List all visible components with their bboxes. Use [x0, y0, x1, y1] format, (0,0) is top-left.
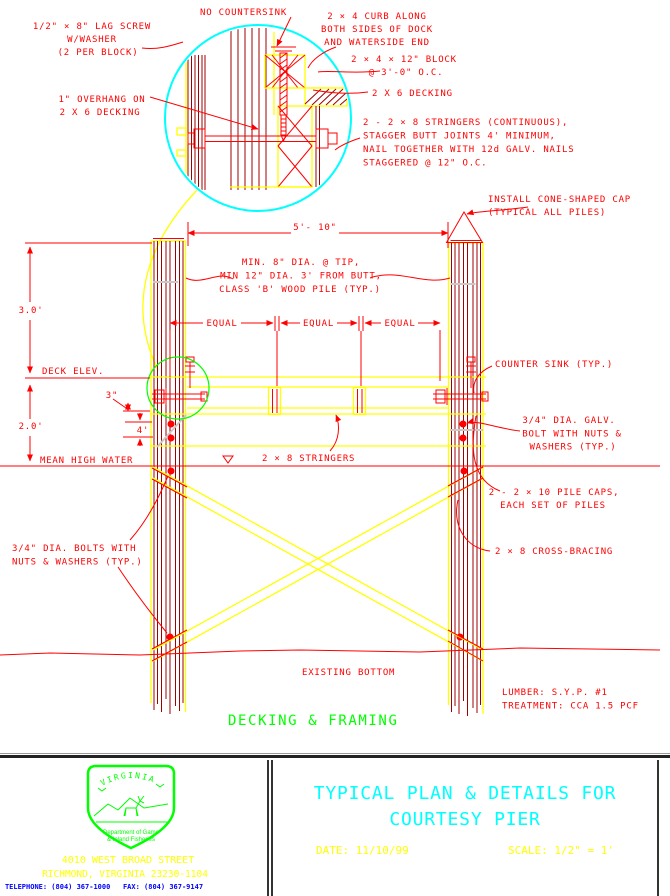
logo-dept-line1: Department of Game — [103, 830, 160, 836]
label-pile-caps: EACH SET OF PILES — [500, 501, 606, 511]
svg-text:VIRGINIA: VIRGINIA — [99, 771, 157, 788]
label-counter-sink: COUNTER SINK (TYP.) — [495, 360, 613, 370]
agency-address-line1: 4010 WEST BROAD STREET — [38, 855, 218, 866]
label-bolts: NUTS & WASHERS (TYP.) — [12, 558, 143, 568]
label-no-countersink: NO COUNTERSINK — [200, 8, 287, 18]
label-existing-bottom: EXISTING BOTTOM — [302, 668, 395, 678]
label-stringers-note: STAGGERED @ 12" O.C. — [363, 159, 487, 169]
dim-equal: EQUAL — [206, 319, 237, 329]
agency-address-line2: RICHMOND, VIRGINIA 23230-1104 — [25, 869, 225, 880]
label-stringers: 2 × 8 STRINGERS — [262, 454, 355, 464]
label-cone-cap: INSTALL CONE-SHAPED CAP — [488, 195, 631, 205]
block-section — [278, 106, 312, 187]
logo-state-name: VIRGINIA — [99, 771, 157, 788]
pier-detail-sheet: NO COUNTERSINK 1/2" × 8" LAG SCREW W/WAS… — [0, 0, 670, 896]
label-bolts: 3/4" DIA. BOLTS WITH — [12, 544, 136, 554]
label-overhang: 2 X 6 DECKING — [60, 108, 141, 118]
label-overhang: 1" OVERHANG ON — [58, 95, 145, 105]
agency-phone-line: TELEPHONE: (804) 367-1000 FAX: (804) 367… — [4, 883, 204, 891]
title-block-divider — [267, 760, 269, 896]
label-stringers-note: NAIL TOGETHER WITH 12d GALV. NAILS — [363, 145, 574, 155]
label-deck-elev: DECK ELEV. — [42, 367, 104, 377]
note-treatment: TREATMENT: CCA 1.5 PCF — [502, 702, 639, 712]
label-block: @ 3'-0" O.C. — [369, 68, 444, 78]
dim-above-deck: 3.0' — [19, 306, 44, 316]
sheet-date: DATE: 11/10/99 — [316, 844, 409, 857]
agency-logo: VIRGINIA Department of Game & Inland Fis… — [74, 762, 190, 854]
lag-screw — [271, 47, 296, 141]
note-lumber: LUMBER: S.Y.P. #1 — [502, 688, 608, 698]
label-galv-bolt: BOLT WITH NUTS & — [522, 430, 622, 440]
title-block-border — [0, 753, 670, 754]
label-mean-high-water: MEAN HIGH WATER — [40, 456, 133, 466]
existing-bottom-line — [0, 648, 660, 655]
dim-equal: EQUAL — [384, 319, 415, 329]
sheet-title-line1: TYPICAL PLAN & DETAILS FOR — [272, 783, 658, 804]
drawing-caption: DECKING & FRAMING — [228, 713, 399, 729]
label-curb: AND WATERSIDE END — [324, 38, 430, 48]
detail-circle-contents — [177, 28, 347, 190]
label-stringers-note: STAGGER BUTT JOINTS 4' MINIMUM, — [363, 132, 556, 142]
water-level-icon — [223, 456, 233, 463]
label-pile-caps: 2 - 2 × 10 PILE CAPS, — [489, 488, 620, 498]
label-lag-screw: (2 PER BLOCK) — [58, 48, 139, 58]
dimension-lines — [25, 222, 448, 461]
sheet-title-line2: COURTESY PIER — [272, 809, 658, 830]
detail-circle-green — [147, 357, 209, 419]
label-cross-bracing: 2 × 8 CROSS-BRACING — [495, 547, 613, 557]
label-pile-note: CLASS 'B' WOOD PILE (TYP.) — [219, 285, 381, 295]
logo-deer-scene-icon — [94, 784, 168, 822]
label-lag-screw: 1/2" × 8" LAG SCREW — [33, 22, 151, 32]
drawing-canvas: NO COUNTERSINK 1/2" × 8" LAG SCREW W/WAS… — [0, 0, 670, 753]
label-stringers-note: 2 - 2 × 8 STRINGERS (CONTINUOUS), — [363, 118, 568, 128]
sheet-scale: SCALE: 1/2" = 1' — [508, 844, 614, 857]
label-pile-note: MIN. 8" DIA. @ TIP, — [242, 258, 360, 268]
label-curb: BOTH SIDES OF DOCK — [321, 25, 433, 35]
label-pile-note: MIN 12" DIA. 3' FROM BUTT, — [220, 272, 382, 282]
dim-span: 5'- 10" — [293, 223, 337, 233]
cone-cap-icon — [447, 212, 483, 243]
dim-bolt-spacing: 4' — [137, 426, 149, 436]
label-curb: 2 × 4 CURB ALONG — [327, 12, 427, 22]
title-block-border — [0, 755, 670, 758]
dim-equal: EQUAL — [303, 319, 334, 329]
label-block: 2 × 4 × 12" BLOCK — [351, 55, 457, 65]
label-decking: 2 X 6 DECKING — [372, 89, 453, 99]
label-galv-bolt: WASHERS (TYP.) — [529, 443, 616, 453]
dim-deck-to-water: 2.0' — [19, 422, 44, 432]
logo-dept-line2: & Inland Fisheries — [107, 837, 155, 843]
deck-structure — [150, 377, 486, 447]
dim-curb-offset: 3" — [106, 391, 118, 401]
label-lag-screw: W/WASHER — [67, 35, 117, 45]
cross-bracing — [152, 467, 483, 661]
label-galv-bolt: 3/4" DIA. GALV. — [522, 416, 615, 426]
label-cone-cap: (TYPICAL ALL PILES) — [488, 208, 606, 218]
pile-bolt-hardware-right — [433, 357, 488, 405]
through-bolt — [188, 129, 337, 148]
